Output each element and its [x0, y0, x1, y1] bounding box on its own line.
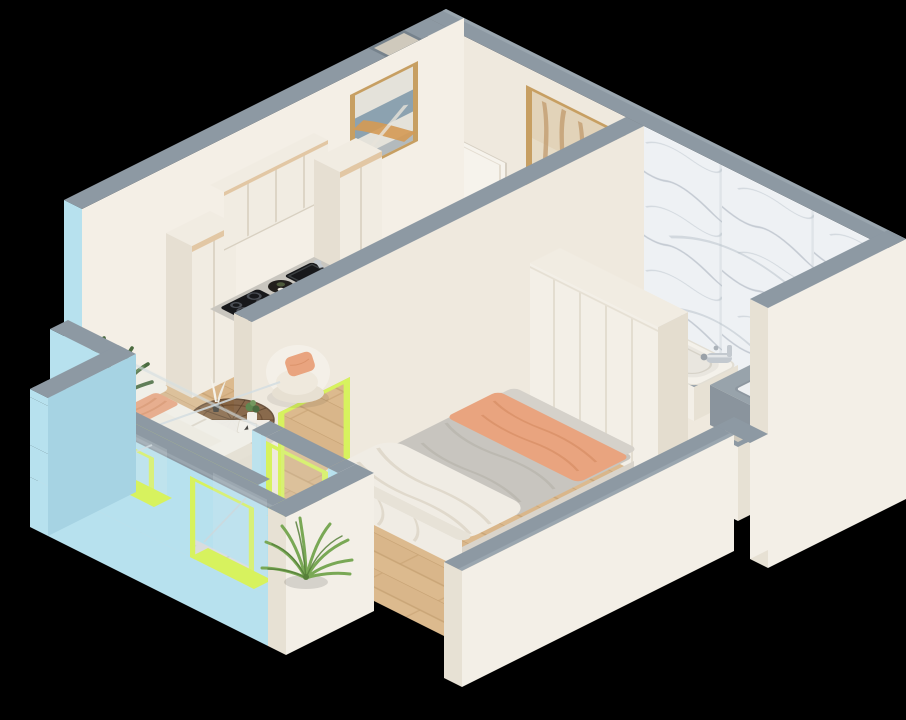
- cabinet-end-panel: [166, 233, 192, 398]
- floor-plan-render: [0, 0, 906, 720]
- isometric-apartment-svg: [0, 0, 906, 720]
- bedroom-front-wall-end: [444, 562, 462, 687]
- armchair: [266, 345, 330, 408]
- facade-jog: [750, 434, 768, 559]
